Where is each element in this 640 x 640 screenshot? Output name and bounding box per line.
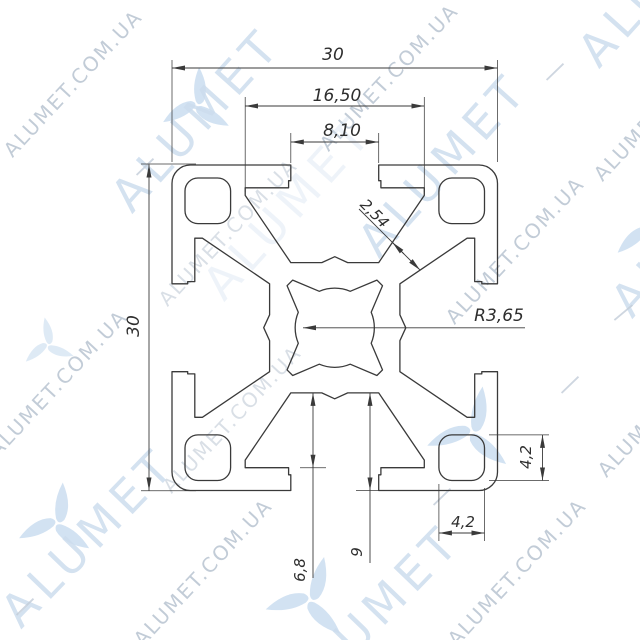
dim-hole-width-label: 4,2 — [451, 513, 475, 531]
watermark-text: ALUMET.COM.UA — [0, 5, 147, 162]
dim-slot-depth-label: 9 — [348, 547, 366, 557]
watermark-text: ALUMET.COM.UA — [129, 494, 278, 640]
watermark-dash: — — [550, 364, 590, 404]
alumet-logo-icon — [612, 192, 640, 254]
dim-slot-opening-label: 8,10 — [323, 121, 361, 141]
watermark-text-large: ALUMET — [567, 0, 640, 77]
technical-drawing-page: ALUMET.COM.UA ALUMET.COM.UA ALUMET.COM.U… — [0, 0, 640, 640]
profile-drawing-canvas: ALUMET.COM.UA ALUMET.COM.UA ALUMET.COM.U… — [0, 0, 640, 640]
dim-hole-height-label: 4,2 — [517, 445, 535, 469]
watermark-text: ALUMET.COM.UA — [593, 325, 640, 482]
corner-hole-top-left — [185, 178, 231, 224]
watermark-dash: — — [535, 51, 575, 91]
dim-slot-inner-width-label: 16,50 — [313, 86, 362, 106]
dim-total-height-label: 30 — [124, 315, 144, 337]
dim-core-radius-label: R3,65 — [474, 306, 524, 326]
dim-total-width-label: 30 — [322, 45, 344, 65]
dim-cavity-depth-label: 6,8 — [291, 558, 309, 582]
watermark-dash: — — [422, 476, 462, 516]
watermark-text: ALUMET.COM.UA — [0, 305, 132, 462]
